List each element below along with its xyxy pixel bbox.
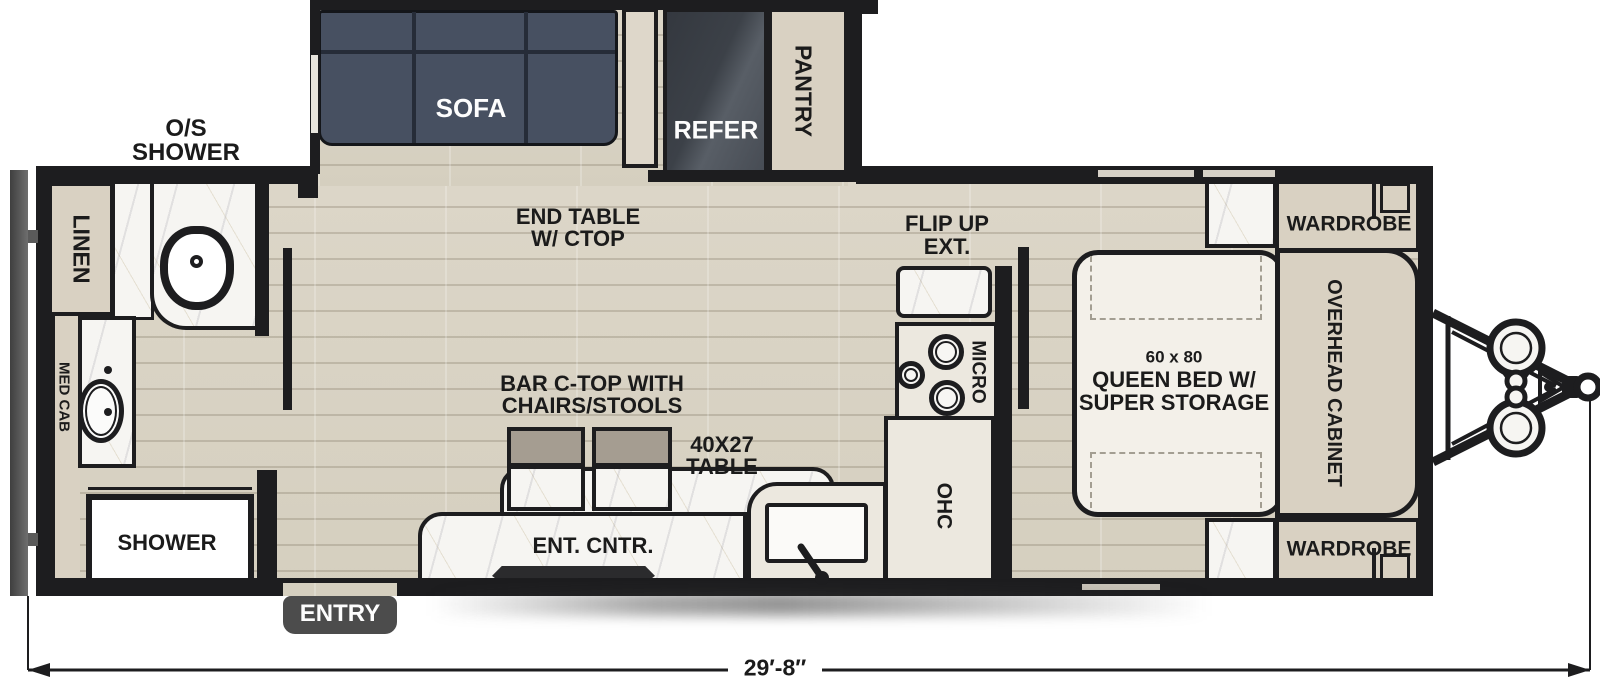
wall-left [36, 166, 52, 596]
bed-fold-line [1090, 452, 1262, 508]
label-ohc: OHC [934, 483, 955, 530]
nightstand-top [1205, 175, 1277, 248]
label-flip-up-line1: FLIP UP [905, 213, 989, 235]
slideout-window [311, 55, 318, 133]
refrigerator [663, 8, 768, 174]
bath-counter-strip [112, 182, 154, 320]
toilet-flush-button [190, 255, 203, 268]
label-end-table-line2: W/ CTOP [531, 228, 625, 250]
bar-chair [592, 427, 672, 467]
entry-threshold [283, 578, 397, 583]
label-bed-line1: 60 x 80 [1146, 349, 1203, 366]
label-sofa: SOFA [436, 95, 507, 121]
dimension-arrow-left [28, 663, 50, 677]
hitch-ball [1577, 376, 1599, 398]
bar-chair [507, 427, 585, 467]
refer-back-wall [648, 170, 862, 182]
bar-seat [592, 465, 672, 511]
ground-shadow [430, 592, 1210, 616]
vanity-hinge-dot [104, 366, 112, 374]
label-entry: ENTRY [300, 602, 380, 626]
wall-right [1418, 166, 1433, 596]
label-linen: LINEN [70, 215, 93, 284]
cooktop-burner [897, 361, 925, 389]
shower-glass-line [88, 487, 252, 490]
wardrobe-top-rod [1380, 183, 1410, 213]
cooktop-burner [929, 380, 965, 416]
end-table [622, 8, 658, 168]
label-pantry: PANTRY [792, 45, 815, 137]
label-os-shower-line1: O/S [165, 117, 206, 141]
kitchen-sink [765, 503, 868, 563]
label-bar-line1: BAR C-TOP WITH [500, 373, 684, 395]
hitch-coupler [1562, 376, 1580, 398]
label-wardrobe-bottom: WARDROBE [1287, 539, 1412, 560]
vanity-hinge-dot [104, 408, 112, 416]
toilet [160, 226, 234, 310]
bumper-bracket [28, 230, 38, 243]
vanity-backsplash [52, 316, 80, 578]
label-bed-line3: SUPER STORAGE [1079, 392, 1269, 414]
label-table-line2: TABLE [686, 456, 758, 478]
kitchen-wall [995, 266, 1012, 596]
flip-up-extension [896, 266, 992, 318]
sofa-cushion-line [524, 12, 528, 143]
propane-tanks [1490, 322, 1542, 454]
label-refer: REFER [674, 119, 759, 144]
label-med-cab: MED CAB [57, 362, 72, 432]
rv-floorplan: O/S SHOWER LINEN MED CAB SHOWER ENTRY SO… [0, 0, 1600, 680]
overhead-cabinet [1275, 248, 1420, 518]
bar-seat [507, 465, 585, 511]
label-micro: MICRO [969, 340, 988, 403]
label-shower: SHOWER [118, 532, 217, 554]
wall-junction [298, 172, 318, 198]
wall-top-left [36, 166, 316, 184]
sofa-cushion-line [412, 12, 416, 143]
wall-bottom-left [36, 578, 283, 596]
label-bed-line2: QUEEN BED W/ [1092, 369, 1256, 391]
bumper-bracket [28, 533, 38, 546]
label-wardrobe-top: WARDROBE [1287, 214, 1412, 235]
slideout-tab [852, 0, 878, 14]
label-overall-length: 29′-8″ [744, 657, 807, 680]
sofa [318, 10, 618, 146]
cooktop-burner [928, 334, 964, 370]
label-bar-line2: CHAIRS/STOOLS [502, 395, 683, 417]
slideout-wall-right [848, 0, 862, 182]
label-table-line1: 40X27 [690, 434, 754, 456]
label-os-shower-line2: SHOWER [132, 141, 240, 165]
slideout-wall-top [310, 0, 862, 10]
bed-fold-line [1090, 256, 1262, 320]
window-slit [1203, 170, 1275, 177]
label-overhead-cabinet: OVERHEAD CABINET [1324, 279, 1344, 487]
bathroom-sink [78, 379, 124, 443]
bath-wall-upper [255, 166, 269, 336]
window-slit [1082, 584, 1160, 590]
rear-bumper [10, 170, 28, 596]
label-flip-up-line2: EXT. [924, 236, 970, 258]
label-end-table-line1: END TABLE [516, 206, 640, 228]
bath-pocket-door [283, 248, 292, 410]
tv-partition-wall [1018, 247, 1029, 409]
dimension-arrow-right [1568, 663, 1590, 677]
label-ent-cntr: ENT. CNTR. [533, 535, 654, 557]
sofa-back-line [321, 50, 615, 54]
window-slit [1098, 170, 1194, 177]
